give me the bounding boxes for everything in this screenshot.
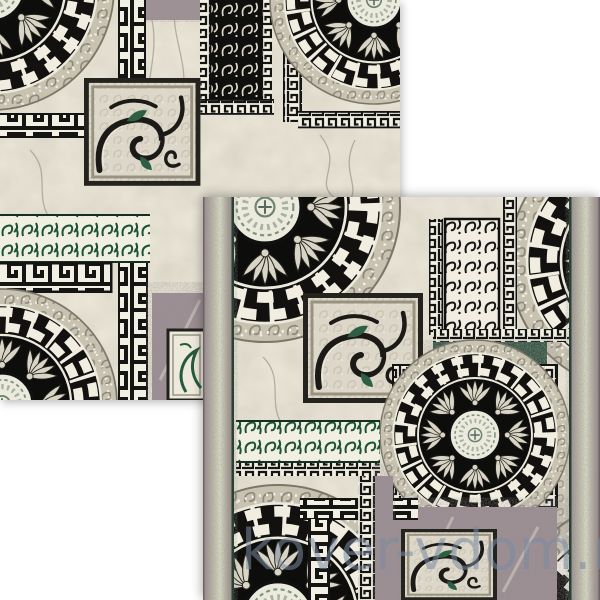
greek-key-row-small-2	[236, 463, 380, 476]
product-photo: { "scene": { "type": "carpet-product-pho…	[0, 0, 600, 600]
mauve-patch-lower	[152, 293, 205, 400]
mauve-patch-top	[146, 0, 200, 20]
greek-key-ribbon-horizontal	[0, 113, 84, 138]
greek-key-border	[0, 262, 113, 293]
rug-edge-border-right	[569, 197, 600, 600]
greek-key-ribbon-vertical-lower	[118, 263, 148, 400]
scroll-tile-small	[401, 529, 497, 600]
greek-key-ribbon-small-2	[358, 476, 375, 600]
rug-edge-border-left	[203, 197, 234, 600]
corner-scroll-tile	[84, 78, 200, 186]
mauve-wedge	[375, 476, 393, 600]
carpet-sample-front	[203, 197, 600, 600]
greek-key-row-small	[433, 329, 573, 342]
photo-stage: kover-vdom.ru	[0, 0, 600, 600]
carpet-front-art	[203, 197, 600, 600]
green-lace-band	[0, 214, 150, 263]
scroll-panel	[198, 0, 274, 115]
ink-lace-panel	[445, 219, 499, 335]
green-lace-band	[236, 420, 380, 463]
